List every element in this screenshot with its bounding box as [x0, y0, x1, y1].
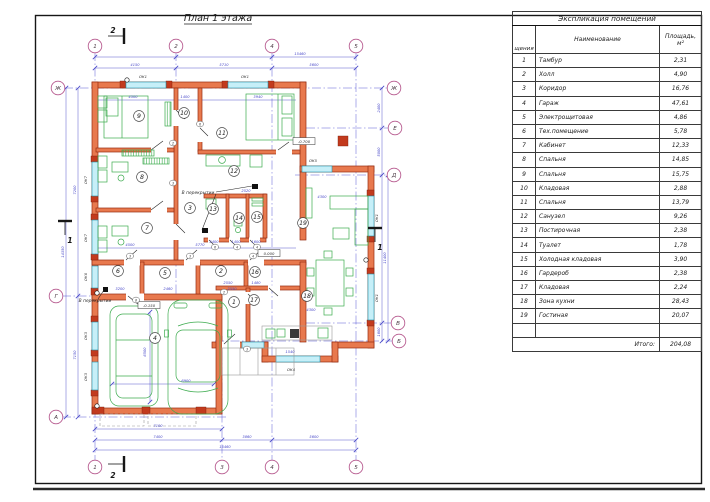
row-number: 15: [513, 252, 536, 266]
dimension-text: 5600: [309, 435, 319, 439]
window-label: ОК3: [83, 372, 88, 381]
row-area: 2,24: [660, 281, 702, 295]
axis-bubble-label: А: [53, 415, 58, 421]
axis-bubble-label: 1: [93, 44, 97, 50]
row-name: Холл: [536, 68, 660, 82]
section-mark-1-right: 1: [377, 243, 382, 252]
ceiling-note: В перекрытии: [79, 298, 112, 304]
dimension-text: 2520: [241, 189, 251, 193]
row-number: 16: [513, 266, 536, 280]
furniture: [98, 94, 368, 414]
window-label: ОК5: [309, 158, 318, 163]
chimney-block: [338, 136, 348, 146]
dimension-text: 6900: [181, 379, 191, 383]
axis-bubble-label: 5: [354, 44, 358, 50]
room-number: 11: [218, 130, 226, 137]
room-number: 2: [219, 268, 223, 275]
row-name: Спальня: [536, 195, 660, 209]
dimension-text: 7200: [73, 185, 77, 195]
door-tag: 4: [256, 245, 258, 249]
room-number: 8: [140, 174, 144, 181]
row-number: 9: [513, 167, 536, 181]
window-label: ОК7: [83, 233, 88, 242]
section-mark-1-left: 1: [67, 236, 72, 245]
explication-table: Экспликация помещений щения Наименование…: [512, 11, 701, 352]
room-number: 18: [303, 293, 311, 300]
dimension-text: 5710: [219, 63, 229, 67]
dimension-text: 6500: [143, 347, 147, 357]
row-number: 18: [513, 295, 536, 309]
door-tag: 4: [252, 254, 254, 258]
dimension-text: 1540: [285, 350, 295, 354]
axis-bubble-label: Д: [391, 173, 397, 179]
table-row: 19Гостиная20,07: [513, 309, 702, 323]
room-number: 7: [145, 225, 149, 232]
stove: [290, 329, 299, 338]
row-number: 7: [513, 139, 536, 153]
dimension-text: 2460: [163, 287, 173, 291]
table-row: 18Зона кухни28,43: [513, 295, 702, 309]
row-number: 10: [513, 181, 536, 195]
table-row: 10Кладовая2,88: [513, 181, 702, 195]
table-row: 16Гардероб2,38: [513, 266, 702, 280]
dimension-text: 4300: [306, 308, 316, 312]
row-area: 15,75: [660, 167, 702, 181]
table-row: 12Санузел9,26: [513, 210, 702, 224]
room-number: 13: [209, 206, 217, 213]
col-header-area-line2: м²: [677, 40, 684, 47]
plan-title: План 1 этажа: [184, 13, 252, 24]
empty-row: [513, 323, 702, 337]
row-name: Гостиная: [536, 309, 660, 323]
room-number: 6: [116, 268, 120, 275]
row-number: 5: [513, 110, 536, 124]
table-row: 6Тех.помещение5,78: [513, 124, 702, 138]
col-header-name: Наименование: [536, 26, 660, 54]
dimension-lines: [64, 55, 390, 452]
door-tag: 6: [214, 245, 216, 249]
table-row: 3Коридор16,76: [513, 82, 702, 96]
row-area: 2,38: [660, 266, 702, 280]
elevation-value: -0.150: [143, 303, 156, 308]
table-title: Экспликация помещений: [513, 12, 702, 26]
row-area: 9,26: [660, 210, 702, 224]
col-header-area-line1: Площадь,: [665, 33, 696, 40]
room-number: 12: [230, 168, 238, 175]
row-area: 16,76: [660, 82, 702, 96]
room-number: 17: [250, 297, 258, 304]
window-label: ОК4: [287, 367, 296, 372]
drawing-sheet: План 1 этажа: [0, 0, 710, 502]
row-area: 3,90: [660, 252, 702, 266]
dimension-text: 5000: [377, 147, 381, 157]
dimension-text: 4500: [125, 243, 135, 247]
row-name: Гардероб: [536, 266, 660, 280]
room-number: 15: [253, 214, 261, 221]
dimension-text: 1400: [231, 240, 241, 244]
row-number: 2: [513, 68, 536, 82]
row-area: 14,85: [660, 153, 702, 167]
table-row: 11Спальня13,79: [513, 195, 702, 209]
row-number: 14: [513, 238, 536, 252]
door-tag: 3: [129, 254, 131, 258]
window-label: ОК1: [374, 294, 379, 302]
door-tag: 4: [236, 245, 238, 249]
dimension-text: 5600: [309, 63, 319, 67]
total-label: Итого:: [513, 337, 660, 351]
row-area: 47,61: [660, 96, 702, 110]
row-number: 12: [513, 210, 536, 224]
room-number: 16: [251, 269, 259, 276]
row-area: 28,43: [660, 295, 702, 309]
axis-bubble-label: 1: [93, 465, 97, 471]
table-row: 4Гараж47,61: [513, 96, 702, 110]
dimension-text: 15460: [294, 52, 306, 56]
dimension-text: 7400: [153, 435, 163, 439]
window-label: ОК1: [241, 74, 249, 79]
row-name: Холодная кладовая: [536, 252, 660, 266]
axis-bubble-label: В: [396, 321, 400, 327]
axis-bubble-label: Б: [397, 339, 401, 345]
dimension-text: 1480: [251, 281, 261, 285]
row-number: 6: [513, 124, 536, 138]
row-name: Тех.помещение: [536, 124, 660, 138]
dimension-text: 11400: [383, 252, 387, 264]
window-label: ОК6: [83, 272, 88, 281]
dimension-text: 4300: [317, 195, 327, 199]
table-row: 1Тамбур2,31: [513, 54, 702, 68]
axis-bubble-label: 4: [270, 44, 274, 50]
dimension-text: 4500: [128, 95, 138, 99]
walls: [91, 81, 374, 414]
row-number: 1: [513, 54, 536, 68]
table-row: 17Кладовая2,24: [513, 281, 702, 295]
dimension-text: 1400: [180, 95, 190, 99]
dimension-text: 1600: [251, 240, 261, 244]
axis-bubble-label: 3: [220, 465, 224, 471]
door-tag: 2: [223, 290, 225, 294]
elevation-value: 0.000: [264, 251, 275, 256]
axis-bubble-label: 5: [354, 465, 358, 471]
table-row: 13Постирочная2,38: [513, 224, 702, 238]
row-number: 11: [513, 195, 536, 209]
dimension-text: 2400: [377, 103, 381, 113]
row-name: Санузел: [536, 210, 660, 224]
row-name: Тамбур: [536, 54, 660, 68]
row-area: 13,79: [660, 195, 702, 209]
axis-bubble-label: Ж: [54, 86, 62, 92]
row-area: 12,33: [660, 139, 702, 153]
row-name: Туалет: [536, 238, 660, 252]
dimension-text: 15460: [219, 445, 231, 449]
dimension-text: 3940: [253, 95, 263, 99]
row-number: 17: [513, 281, 536, 295]
dimension-text: 3860: [242, 435, 252, 439]
table-row: 9Спальня15,75: [513, 167, 702, 181]
axis-bubble-label: Ж: [390, 86, 398, 92]
section-mark-2-top: 2: [110, 26, 115, 35]
row-area: 1,78: [660, 238, 702, 252]
dim-ticks: [64, 55, 390, 452]
dimension-text: 2550: [227, 287, 237, 291]
axis-bubble-label: Е: [393, 126, 397, 132]
table-row: 15Холодная кладовая3,90: [513, 252, 702, 266]
col-header-number: щения: [513, 26, 536, 54]
window-label: ОК1: [374, 214, 379, 222]
table-row: 7Кабинет12,33: [513, 139, 702, 153]
grid-axes: [62, 52, 393, 461]
row-name: Спальня: [536, 153, 660, 167]
room-number: 10: [180, 110, 188, 117]
axis-bubble-label: 4: [270, 465, 274, 471]
table-row: 5Электрощитовая4,86: [513, 110, 702, 124]
elevation-value: -0.700: [298, 139, 311, 144]
table-row: 14Туалет1,78: [513, 238, 702, 252]
row-area: 4,90: [660, 68, 702, 82]
table-row: 2Холл4,90: [513, 68, 702, 82]
dimension-text: 2400: [209, 240, 219, 244]
row-name: Кладовая: [536, 181, 660, 195]
door-tag: 8: [135, 298, 137, 302]
dimension-text: 14350: [61, 246, 65, 258]
row-number: 3: [513, 82, 536, 96]
door-tag: 2: [172, 141, 174, 145]
dimension-text: 7150: [73, 350, 77, 360]
window-label: ОК1: [139, 74, 147, 79]
total-value: 204,08: [660, 337, 702, 351]
section-mark-2-bottom: 2: [110, 471, 115, 480]
row-number: 13: [513, 224, 536, 238]
window-label: ОК3: [83, 331, 88, 340]
row-name: Гараж: [536, 96, 660, 110]
room-number: 14: [235, 215, 243, 222]
row-name: Зона кухни: [536, 295, 660, 309]
room-number: 19: [299, 220, 307, 227]
table-row: 8Спальня14,85: [513, 153, 702, 167]
room-number: 5: [163, 270, 167, 277]
row-name: Коридор: [536, 82, 660, 96]
row-number: 4: [513, 96, 536, 110]
room-number: 4: [153, 335, 157, 342]
row-area: 2,38: [660, 224, 702, 238]
col-header-area: Площадь, м²: [660, 26, 702, 54]
row-name: Электрощитовая: [536, 110, 660, 124]
row-name: Постирочная: [536, 224, 660, 238]
dimension-text: 5770: [195, 243, 205, 247]
door-tag: 3: [189, 254, 191, 258]
ceiling-note: В перекрытии: [182, 190, 215, 196]
dimension-text: 3200: [115, 287, 125, 291]
room-number: 1: [232, 299, 236, 306]
dimension-text: 2550: [223, 281, 233, 285]
row-number: 8: [513, 153, 536, 167]
dimension-text: 1800: [377, 327, 381, 337]
window-label: ОК7: [83, 175, 88, 184]
total-row: Итого: 204,08: [513, 337, 702, 351]
row-name: Кабинет: [536, 139, 660, 153]
door-tag: 3: [172, 181, 174, 185]
room-number: 3: [188, 205, 192, 212]
row-area: 2,31: [660, 54, 702, 68]
row-area: 20,07: [660, 309, 702, 323]
row-number: 19: [513, 309, 536, 323]
row-area: 5,78: [660, 124, 702, 138]
row-name: Кладовая: [536, 281, 660, 295]
axis-bubble-label: 2: [174, 44, 178, 50]
door-tag: 3: [246, 347, 248, 351]
row-area: 2,88: [660, 181, 702, 195]
window-labels: ОК1ОК1ОК7ОК7ОК6ОК3ОК3ОК5ОК4ОК1ОК1: [83, 74, 379, 381]
room-number: 9: [137, 113, 141, 120]
row-name: Спальня: [536, 167, 660, 181]
dimension-text: 4150: [130, 63, 140, 67]
door-tag: 6: [199, 122, 201, 126]
row-area: 4,86: [660, 110, 702, 124]
dimension-text: 7100: [153, 424, 163, 428]
